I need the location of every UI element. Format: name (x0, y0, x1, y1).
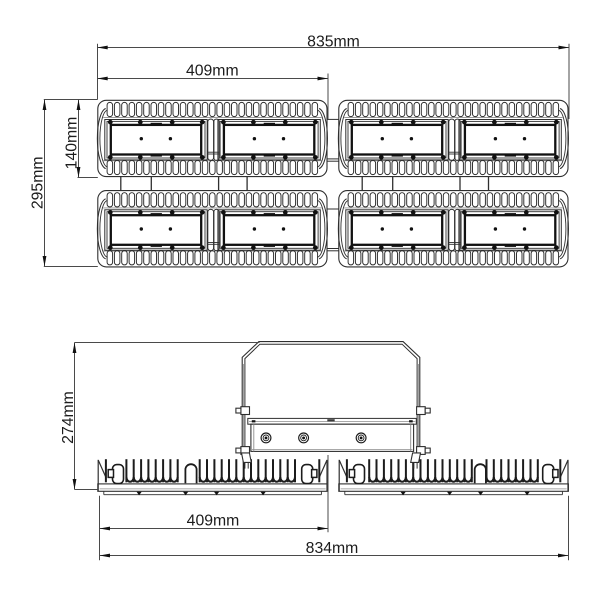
svg-text:409mm: 409mm (187, 512, 240, 529)
svg-text:140mm: 140mm (63, 117, 80, 170)
svg-text:834mm: 834mm (306, 540, 359, 557)
svg-text:274mm: 274mm (60, 391, 77, 444)
svg-text:409mm: 409mm (186, 63, 239, 80)
svg-text:835mm: 835mm (307, 34, 360, 51)
svg-text:295mm: 295mm (30, 156, 47, 209)
